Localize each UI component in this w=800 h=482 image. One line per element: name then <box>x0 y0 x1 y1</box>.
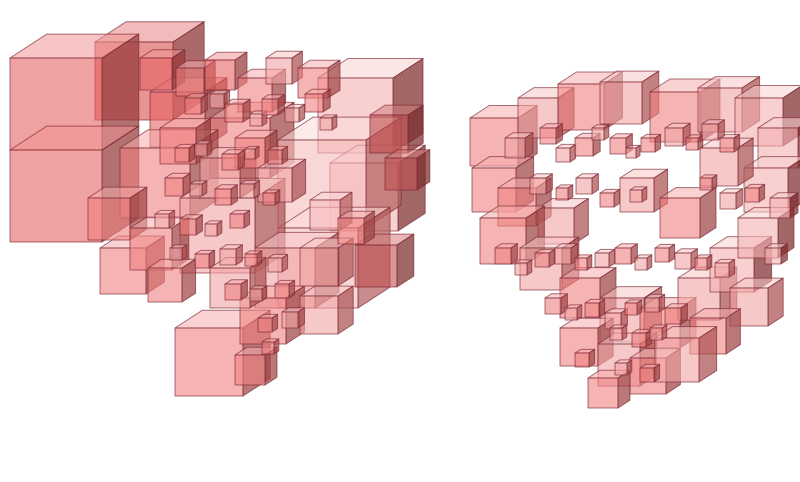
cube-face <box>183 173 190 196</box>
cube-face <box>759 184 765 202</box>
cube-face <box>632 333 646 347</box>
cube-face <box>665 128 683 146</box>
cube-face <box>655 134 661 152</box>
cube-face <box>702 124 718 140</box>
cube-face <box>254 180 260 198</box>
cube-face <box>282 254 288 272</box>
cube-face <box>622 325 627 340</box>
cube-face <box>545 298 561 314</box>
cube-face <box>320 118 332 130</box>
cube-face <box>209 250 215 268</box>
cube-face <box>662 325 667 340</box>
cube-face <box>300 248 338 286</box>
cube-face <box>535 253 549 267</box>
cube-face <box>585 303 599 317</box>
cube-face <box>647 255 652 270</box>
cube-face <box>243 99 250 122</box>
cube-face <box>185 98 201 114</box>
cube-face <box>175 148 189 162</box>
cube-face <box>240 184 254 198</box>
cube-face <box>182 245 187 260</box>
cube-face <box>568 185 573 200</box>
cube-face <box>669 244 675 262</box>
cube-face <box>258 318 272 332</box>
cube-face <box>655 338 699 382</box>
cube-face <box>196 215 202 235</box>
cube-face <box>610 138 626 154</box>
cube-face <box>250 289 262 301</box>
cube-face <box>220 249 236 265</box>
cube-face <box>641 138 655 152</box>
cube-face <box>565 308 577 320</box>
cube-face <box>323 89 330 112</box>
cube-face <box>659 294 665 312</box>
cube-face <box>592 128 604 140</box>
cube-face <box>700 178 712 190</box>
cube-face <box>255 146 259 159</box>
cube-face <box>195 144 207 156</box>
cube-face <box>615 363 627 375</box>
cube-face <box>140 58 172 90</box>
cube-face <box>707 255 712 270</box>
cube-face <box>530 178 546 194</box>
cube-face <box>615 248 631 264</box>
cube-face <box>695 258 707 270</box>
cube-face <box>355 245 397 287</box>
cube-face <box>300 296 338 334</box>
cube-face <box>88 198 130 240</box>
cube-face <box>625 303 637 315</box>
cube-face <box>285 108 299 122</box>
cube-face <box>299 104 305 122</box>
cube-face <box>245 254 257 266</box>
cube-face <box>576 178 592 194</box>
cube-face <box>587 255 592 270</box>
cube-face <box>715 263 729 277</box>
left-cube-cluster <box>10 22 430 396</box>
cube-face <box>540 128 556 144</box>
cube-face <box>575 353 589 367</box>
cube-face <box>609 249 615 267</box>
cube-face <box>637 300 642 315</box>
cube-face <box>338 218 364 244</box>
cube-face <box>235 355 265 385</box>
cube-face <box>675 253 691 269</box>
cube-face <box>734 134 740 152</box>
cube-face <box>201 94 207 114</box>
cube-face <box>180 219 196 235</box>
cube-face <box>225 104 243 122</box>
right-cube-cluster <box>470 71 800 408</box>
cube-face <box>686 138 698 150</box>
cube-face <box>202 181 207 196</box>
cube-face <box>278 95 284 115</box>
cube-face <box>236 245 242 265</box>
cube-face <box>729 259 735 277</box>
cube-face <box>262 99 278 115</box>
cube-face <box>712 175 717 190</box>
cube-face <box>527 260 532 275</box>
cube-face <box>636 145 640 158</box>
cube-face <box>195 254 209 268</box>
cube-face <box>217 221 222 236</box>
cube-face <box>263 193 275 205</box>
cube-face <box>599 299 605 317</box>
cube-face <box>165 178 183 196</box>
cube-face <box>207 141 212 156</box>
cube-face <box>511 244 517 264</box>
cube-face <box>720 193 736 209</box>
cube-face <box>765 248 781 264</box>
cube-face <box>589 349 595 367</box>
cube-face <box>627 360 632 375</box>
cube-face <box>630 190 642 202</box>
cube-render-canvas <box>0 0 800 482</box>
cube-face <box>600 193 614 207</box>
cube-face <box>190 184 202 196</box>
cube-face <box>241 280 247 300</box>
cube-face <box>205 60 235 90</box>
cube-face <box>148 268 182 302</box>
cube-face <box>298 308 304 328</box>
cube-face <box>231 185 237 205</box>
cube-face <box>282 312 298 328</box>
cube-face <box>736 189 742 209</box>
cube-face <box>575 138 593 156</box>
cube-face <box>555 248 571 264</box>
cube-face <box>558 84 604 130</box>
cube-face <box>155 214 169 228</box>
cube-face <box>268 258 282 272</box>
cube-face <box>781 244 787 264</box>
cube-face <box>681 304 687 324</box>
cube-face <box>556 148 570 162</box>
cube-face <box>262 342 274 354</box>
cube-face <box>268 150 282 164</box>
cube-face <box>635 258 647 270</box>
cube-face <box>595 253 609 267</box>
cube-face <box>600 82 642 124</box>
cube-face <box>604 125 609 140</box>
cube-face <box>305 94 323 112</box>
cube-face <box>640 368 654 382</box>
cube-face <box>230 214 244 228</box>
cube-face <box>592 174 598 194</box>
cube-face <box>745 188 759 202</box>
cube-face <box>266 58 292 84</box>
cube-face <box>770 198 790 218</box>
cube-face <box>654 364 660 382</box>
cube-face <box>169 210 175 228</box>
cube-face <box>642 187 647 202</box>
cube-face <box>650 328 662 340</box>
cube-face <box>556 188 568 200</box>
cube-face <box>645 298 659 312</box>
cube-face <box>176 68 204 96</box>
cube-face <box>262 286 267 301</box>
cube-face <box>282 146 288 164</box>
cube-face <box>289 280 295 298</box>
cube-face <box>170 248 182 260</box>
cube-face <box>310 200 340 230</box>
cube-face <box>215 189 231 205</box>
cube-face <box>175 328 243 396</box>
cube-face <box>385 158 417 190</box>
cube-face <box>222 154 238 170</box>
cube-face <box>655 248 669 262</box>
cube-face <box>495 248 511 264</box>
cube-face <box>505 138 525 158</box>
cube-face <box>210 94 224 108</box>
cube-face <box>626 148 636 158</box>
cube-face <box>614 189 620 207</box>
cube-face <box>370 115 408 153</box>
cube-face <box>515 263 527 275</box>
cube-face <box>588 378 618 408</box>
cube-face <box>257 251 262 266</box>
cube-face <box>272 314 278 332</box>
cube-face <box>610 328 622 340</box>
cube-face <box>250 114 262 126</box>
cube-face <box>660 198 700 238</box>
cube-face <box>245 149 255 159</box>
cube-face <box>556 124 562 144</box>
cube-face <box>244 210 250 228</box>
cube-face <box>577 305 582 320</box>
cube-face <box>332 115 337 130</box>
cube-face <box>238 150 244 170</box>
cube-face <box>275 284 289 298</box>
cube-face <box>275 190 280 205</box>
cube-face <box>225 284 241 300</box>
cube-face <box>575 258 587 270</box>
render-stage <box>0 0 800 482</box>
cube-face <box>274 339 279 354</box>
cube-face <box>189 144 195 162</box>
cube-face <box>720 138 734 152</box>
cube-face <box>665 308 681 324</box>
cube-face <box>549 249 555 267</box>
cube-face <box>546 174 552 194</box>
cube-face <box>205 224 217 236</box>
